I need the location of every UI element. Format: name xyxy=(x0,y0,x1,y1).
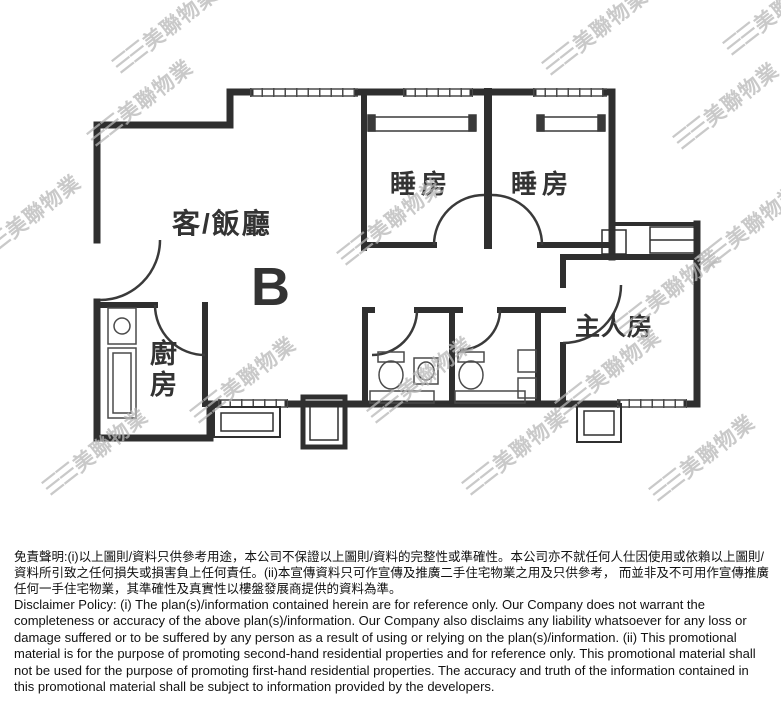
room-label-living-dining: 客/飯廳 xyxy=(172,210,272,238)
kitchen-fixtures xyxy=(108,308,136,418)
floorplan-area: 客/飯廳 B 睡房 睡房 主人房 廚房 xyxy=(0,0,781,550)
bathroom2-door-arc xyxy=(460,310,500,350)
floorplan-page: 客/飯廳 B 睡房 睡房 主人房 廚房 ☰☰美聯物業☰☰美聯物業☰☰美聯物業☰☰… xyxy=(0,0,781,713)
bathroom1-door-arc xyxy=(372,310,417,355)
disclaimer-english: Disclaimer Policy: (i) The plan(s)/infor… xyxy=(14,597,771,695)
room-label-bedroom-1: 睡房 xyxy=(390,171,452,197)
interior-walls xyxy=(97,92,697,404)
room-label-kitchen: 廚房 xyxy=(147,339,174,401)
room-label-bedroom-2: 睡房 xyxy=(511,171,573,197)
entrance-door-arc xyxy=(100,240,160,300)
unit-label: B xyxy=(251,260,290,314)
room-label-master-bedroom: 主人房 xyxy=(575,315,653,340)
floorplan-svg xyxy=(0,0,781,550)
bedroom1-door-arc xyxy=(434,195,484,245)
bedroom2-door-arc xyxy=(492,195,542,245)
outer-walls xyxy=(97,92,697,438)
disclaimer-block: 免責聲明:(i)以上圖則/資料只供參考用途，本公司不保證以上圖則/資料的完整性或… xyxy=(14,549,771,695)
disclaimer-chinese: 免責聲明:(i)以上圖則/資料只供參考用途，本公司不保證以上圖則/資料的完整性或… xyxy=(14,549,771,597)
